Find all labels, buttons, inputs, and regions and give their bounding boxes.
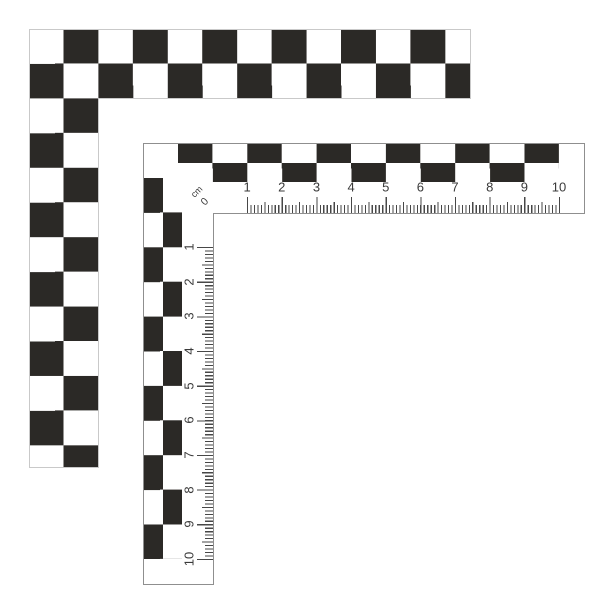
outer-scale-vertical-arm xyxy=(29,29,98,467)
cm-number-v-3: 3 xyxy=(182,313,195,320)
cm-number-h-7: 7 xyxy=(451,181,458,194)
ruler-outline-right-end xyxy=(584,143,585,214)
cm-number-v-8: 8 xyxy=(182,486,195,493)
outer-scale-outline-inner-horizontal xyxy=(98,98,470,99)
outer-scale-outline-top xyxy=(29,29,471,30)
ruler-v-mm-ticks xyxy=(205,247,214,561)
ruler-inner-edge-horizontal xyxy=(213,213,585,214)
outer-scale-outline-left xyxy=(29,29,30,468)
ruler-outline-bottom-end xyxy=(143,584,214,585)
ruler-horizontal-checkerboard xyxy=(178,144,559,182)
cm-number-h-10: 10 xyxy=(552,181,566,194)
cm-number-h-3: 3 xyxy=(313,181,320,194)
cm-number-v-6: 6 xyxy=(182,417,195,424)
l-scales-illustration: 12345678910 12345678910 cm 0 xyxy=(0,0,606,600)
outer-scale-outline-bottom-end xyxy=(29,467,99,468)
cm-number-v-4: 4 xyxy=(182,347,195,354)
cm-number-h-5: 5 xyxy=(382,181,389,194)
outer-scale-outline-inner-vertical xyxy=(98,98,99,467)
ruler-h-mm-ticks xyxy=(247,205,561,214)
cm-number-v-1: 1 xyxy=(182,244,195,251)
cm-number-v-7: 7 xyxy=(182,451,195,458)
cm-number-h-2: 2 xyxy=(278,181,285,194)
ruler-vertical-checkerboard xyxy=(144,178,182,559)
cm-number-v-10: 10 xyxy=(182,552,195,566)
cm-number-v-5: 5 xyxy=(182,382,195,389)
outer-scale-outline-right-end xyxy=(470,29,471,99)
ruler-inner-edge-vertical xyxy=(213,213,214,585)
cm-number-h-9: 9 xyxy=(521,181,528,194)
cm-number-v-9: 9 xyxy=(182,521,195,528)
cm-number-h-1: 1 xyxy=(244,181,251,194)
cm-number-h-4: 4 xyxy=(347,181,354,194)
ruler-outline-left xyxy=(143,143,144,585)
ruler-outline-top xyxy=(143,143,585,144)
cm-number-h-8: 8 xyxy=(486,181,493,194)
cm-number-h-6: 6 xyxy=(417,181,424,194)
cm-number-v-2: 2 xyxy=(182,278,195,285)
